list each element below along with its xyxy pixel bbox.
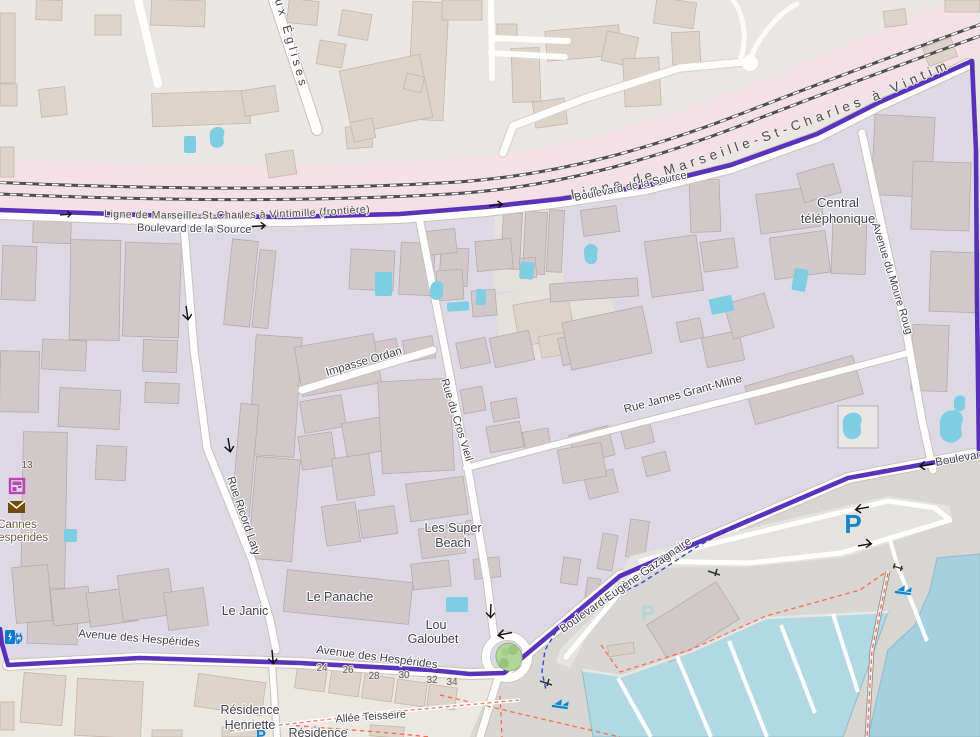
svg-text:Le Janic: Le Janic [222, 604, 269, 618]
svg-text:Le Panache: Le Panache [307, 590, 374, 604]
svg-text:Cannes: Cannes [0, 519, 37, 531]
svg-text:28: 28 [368, 671, 380, 682]
svg-text:13: 13 [21, 460, 33, 471]
svg-text:Lou: Lou [426, 618, 447, 632]
svg-text:Résidence: Résidence [220, 703, 279, 717]
svg-text:Beach: Beach [435, 536, 470, 550]
svg-text:téléphonique: téléphonique [801, 211, 875, 226]
svg-text:hesperides: hesperides [0, 532, 48, 544]
svg-text:32: 32 [426, 675, 438, 686]
svg-text:Résidence: Résidence [288, 726, 347, 737]
svg-text:30: 30 [398, 670, 410, 681]
svg-text:26: 26 [342, 665, 354, 676]
svg-text:Henriette: Henriette [225, 718, 276, 732]
svg-text:P: P [256, 727, 266, 737]
svg-text:Les Super: Les Super [425, 521, 482, 535]
svg-text:Galoubet: Galoubet [408, 632, 459, 646]
svg-text:Central: Central [817, 195, 859, 210]
svg-text:Boulevard de la Source: Boulevard de la Source [137, 222, 252, 236]
svg-text:34: 34 [446, 677, 458, 688]
svg-text:P: P [641, 602, 655, 625]
svg-text:24: 24 [316, 663, 328, 674]
svg-text:P: P [844, 509, 861, 539]
